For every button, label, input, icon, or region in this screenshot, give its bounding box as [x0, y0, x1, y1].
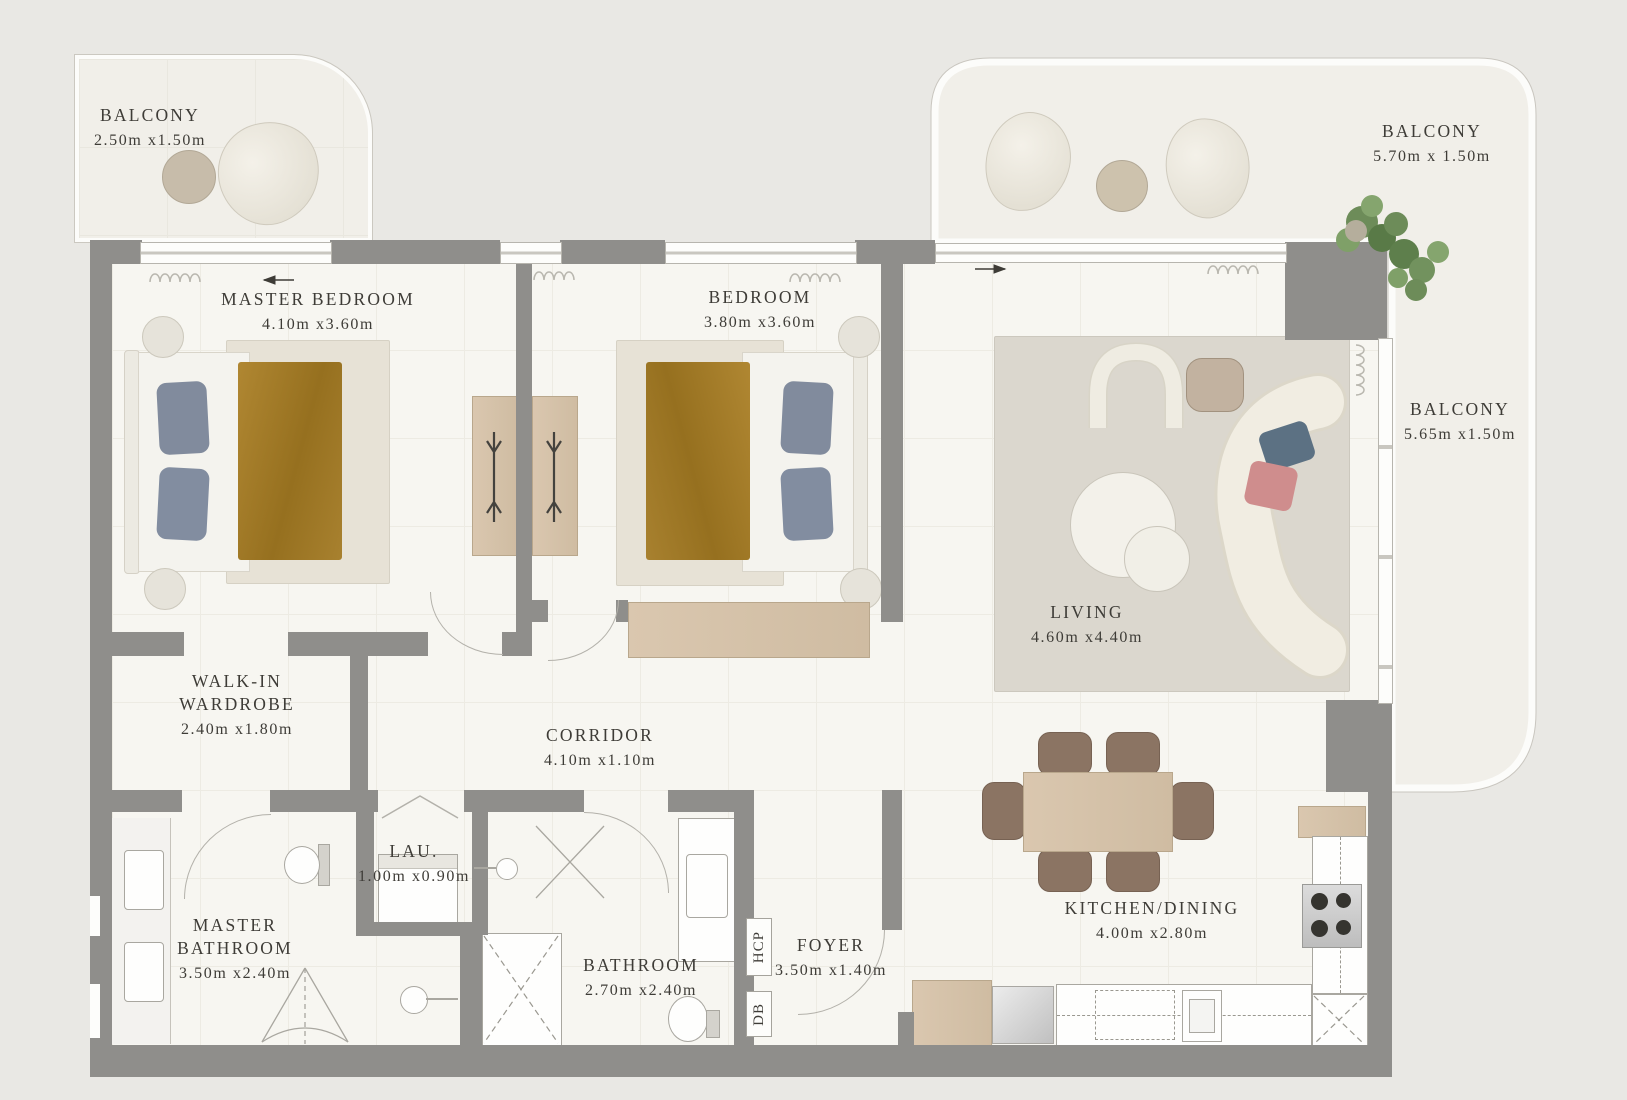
room-label-balcony-right: BALCONY 5.65m x1.50m: [1404, 398, 1516, 446]
kitchen-cabinet: [912, 980, 992, 1046]
utility-label-db: DB: [746, 991, 772, 1037]
dining-chair: [1106, 732, 1160, 776]
side-table: [1124, 526, 1190, 592]
sink: [686, 854, 728, 918]
bed-blanket: [646, 362, 750, 560]
sliding-door: [935, 243, 1287, 263]
dishwasher: [992, 986, 1054, 1044]
room-label-balcony-top-right: BALCONY 5.70m x 1.50m: [1373, 120, 1491, 168]
burner: [1336, 893, 1351, 908]
lounge-chair: [1158, 111, 1258, 224]
burner: [1311, 920, 1328, 937]
dining-chair: [1170, 782, 1214, 840]
master-nightstand: [144, 568, 186, 610]
master-bed-pillow: [156, 467, 210, 542]
room-label-bathroom: BATHROOM 2.70m x2.40m: [583, 954, 699, 1002]
room-label-laundry: LAU. 1.00m x0.90m: [358, 840, 470, 888]
sink: [124, 850, 164, 910]
utility-label-hcp: HCP: [746, 918, 772, 976]
wardrobe: [472, 396, 518, 556]
sink: [124, 942, 164, 1002]
shower: [482, 933, 562, 1047]
tall-cabinet: [1312, 994, 1368, 1048]
room-label-master-bedroom: MASTER BEDROOM 4.10m x3.60m: [221, 288, 415, 336]
room-label-walkin-wardrobe: WALK-IN WARDROBE 2.40m x1.80m: [172, 670, 302, 741]
wall-light: [496, 858, 518, 880]
window-slit: [90, 984, 100, 1038]
room-label-bedroom: BEDROOM 3.80m x3.60m: [704, 286, 816, 334]
master-bed-pillow: [156, 381, 210, 456]
stove: [1302, 884, 1362, 948]
bed-pillow: [780, 467, 834, 542]
shower-head: [400, 986, 428, 1014]
kitchen-sink: [1182, 990, 1222, 1042]
burner: [1336, 920, 1351, 935]
nightstand: [838, 316, 880, 358]
balcony-table: [162, 150, 216, 204]
bed-headboard: [852, 350, 868, 574]
room-label-living: LIVING 4.60m x4.40m: [1031, 601, 1143, 649]
toilet: [668, 996, 708, 1042]
toilet-tank: [706, 1010, 720, 1038]
balcony-table: [1096, 160, 1148, 212]
master-bed-blanket: [238, 362, 342, 560]
bed-pillow: [780, 381, 834, 456]
dining-chair: [1038, 732, 1092, 776]
room-label-master-bathroom: MASTER BATHROOM 3.50m x2.40m: [160, 914, 310, 985]
window: [665, 242, 857, 264]
glazed-wall: [1378, 338, 1393, 704]
window-slit: [90, 896, 100, 936]
burner: [1311, 893, 1328, 910]
lounge-chair: [977, 104, 1080, 219]
kitchen-cabinet: [1298, 806, 1366, 838]
dining-chair: [982, 782, 1026, 840]
room-label-balcony-top-left: BALCONY 2.50m x1.50m: [94, 104, 206, 152]
wardrobe: [532, 396, 578, 556]
toilet: [284, 846, 320, 884]
room-label-foyer: FOYER 3.50m x1.40m: [775, 934, 887, 982]
dining-chair: [1106, 848, 1160, 892]
dresser: [628, 602, 870, 658]
master-nightstand: [142, 316, 184, 358]
room-label-kitchen-dining: KITCHEN/DINING 4.00m x2.80m: [1065, 897, 1240, 945]
window: [500, 242, 562, 264]
dining-table: [1023, 772, 1173, 852]
ottoman: [1186, 358, 1244, 412]
room-label-corridor: CORRIDOR 4.10m x1.10m: [544, 724, 656, 772]
dining-chair: [1038, 848, 1092, 892]
window: [140, 242, 332, 264]
floor-plan: BALCONY 2.50m x1.50m MASTER BEDROOM 4.10…: [0, 0, 1627, 1100]
